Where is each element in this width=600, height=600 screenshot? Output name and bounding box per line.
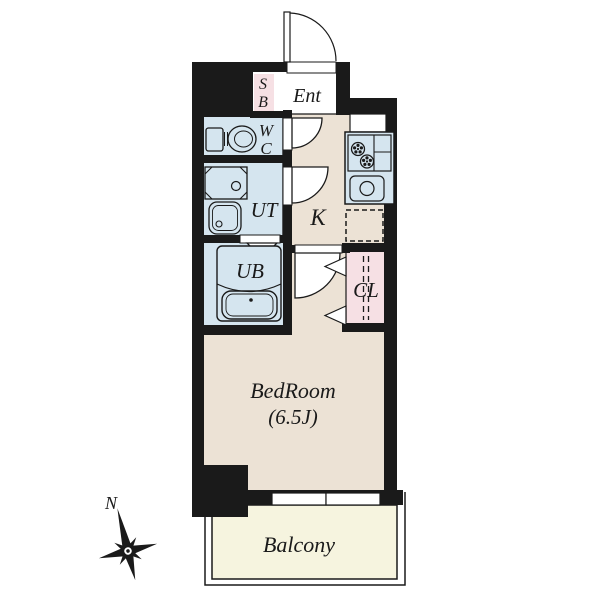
bedroom-label: BedRoom — [250, 378, 336, 403]
shoe-box-label-line2: B — [258, 94, 268, 111]
bathtub-icon — [217, 246, 281, 321]
bedroom-size-label: (6.5J) — [268, 405, 318, 429]
compass-north-label: N — [104, 493, 118, 513]
balcony-label: Balcony — [263, 532, 335, 557]
balcony-window-right — [326, 493, 380, 505]
washbasin-icon — [209, 202, 241, 234]
wall-segment — [192, 325, 292, 335]
floor-plan: S B Ent W C UT K UB CL BedRoom (6.5J) Ba… — [0, 0, 600, 600]
kitchen-window — [350, 114, 386, 132]
utility-door-opening — [283, 167, 292, 205]
wall-segment — [338, 98, 397, 115]
wc-label-line1: W — [259, 121, 275, 140]
closet-label: CL — [353, 278, 379, 302]
wall-segment — [342, 323, 397, 332]
shoe-box-label-line1: S — [259, 76, 267, 93]
wall-segment — [192, 465, 248, 517]
entrance-door-opening — [287, 62, 336, 73]
bedroom-door-opening — [295, 245, 342, 253]
washing-machine-icon — [205, 167, 247, 199]
unit-bath-label: UB — [236, 259, 264, 283]
bath-door-opening — [240, 235, 280, 243]
balcony-window-left — [272, 493, 326, 505]
entrance-door-leaf — [284, 12, 290, 62]
wall-segment — [192, 62, 204, 467]
wc-label-line2: C — [260, 139, 272, 158]
wall-segment — [342, 243, 397, 252]
wc-door-opening — [283, 118, 292, 150]
entrance-label: Ent — [292, 85, 321, 107]
kitchen-label: K — [309, 205, 327, 230]
floor-plan-page: S B Ent W C UT K UB CL BedRoom (6.5J) Ba… — [0, 0, 600, 600]
utility-label: UT — [251, 198, 279, 222]
kitchen-counter — [345, 132, 394, 204]
wall-segment — [283, 245, 295, 253]
